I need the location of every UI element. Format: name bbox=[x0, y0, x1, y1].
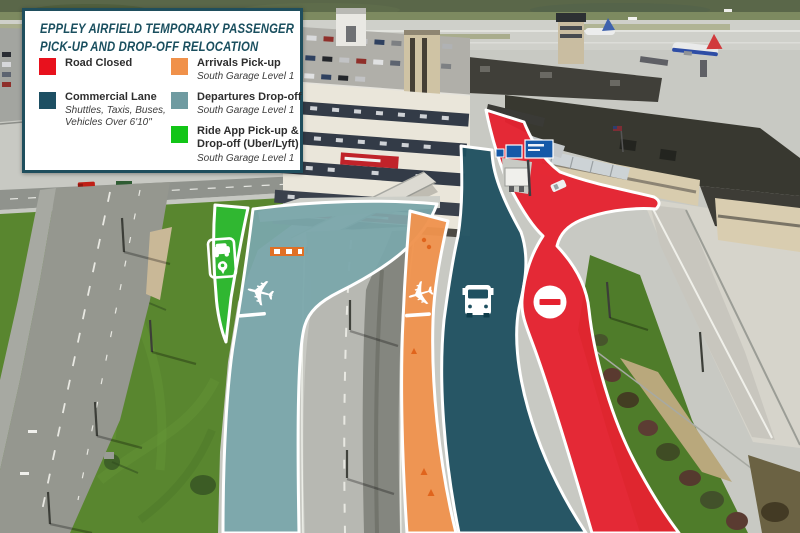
infographic-canvas: ✈ ✈ bbox=[0, 0, 800, 533]
legend-label-road-closed: Road Closed bbox=[65, 57, 169, 70]
legend-sublabel-ride-app: South Garage Level 1 bbox=[197, 153, 303, 165]
legend-sublabel-commercial-lane: Shuttles, Taxis, Buses, Vehicles Over 6'… bbox=[65, 105, 169, 129]
legend-title-line1: EPPLEY AIRFIELD TEMPORARY PASSENGER bbox=[40, 20, 258, 38]
barricade bbox=[270, 247, 304, 256]
no-entry-icon bbox=[534, 286, 567, 319]
legend-swatch-arrivals bbox=[171, 58, 188, 75]
legend-label-ride-app: Ride App Pick-up & Drop-off (Uber/Lyft) bbox=[197, 125, 303, 152]
legend-swatch-departures bbox=[171, 92, 188, 109]
legend-swatch-road-closed bbox=[39, 58, 56, 75]
legend-item-departures: Departures Drop-off South Garage Level 1 bbox=[171, 91, 303, 117]
legend-swatch-ride-app bbox=[171, 126, 188, 143]
legend-swatch-commercial-lane bbox=[39, 92, 56, 109]
legend-label-commercial-lane: Commercial Lane bbox=[65, 91, 169, 104]
legend-sublabel-arrivals: South Garage Level 1 bbox=[197, 71, 303, 83]
legend-panel: EPPLEY AIRFIELD TEMPORARY PASSENGER PICK… bbox=[22, 8, 303, 173]
legend-item-road-closed: Road Closed bbox=[39, 57, 169, 70]
legend-sublabel-departures: South Garage Level 1 bbox=[197, 105, 303, 117]
legend-item-commercial-lane: Commercial Lane Shuttles, Taxis, Buses, … bbox=[39, 91, 169, 129]
legend-item-arrivals: Arrivals Pick-up South Garage Level 1 bbox=[171, 57, 303, 83]
toll-booth-canopy bbox=[505, 168, 529, 186]
bus-icon bbox=[463, 285, 494, 318]
legend-item-ride-app: Ride App Pick-up & Drop-off (Uber/Lyft) … bbox=[171, 125, 303, 165]
control-tower bbox=[556, 13, 586, 64]
legend-title-line2: PICK-UP AND DROP-OFF RELOCATION bbox=[40, 38, 258, 56]
legend-label-arrivals: Arrivals Pick-up bbox=[197, 57, 303, 70]
legend-title: EPPLEY AIRFIELD TEMPORARY PASSENGER PICK… bbox=[40, 20, 258, 56]
legend-label-departures: Departures Drop-off bbox=[197, 91, 303, 104]
